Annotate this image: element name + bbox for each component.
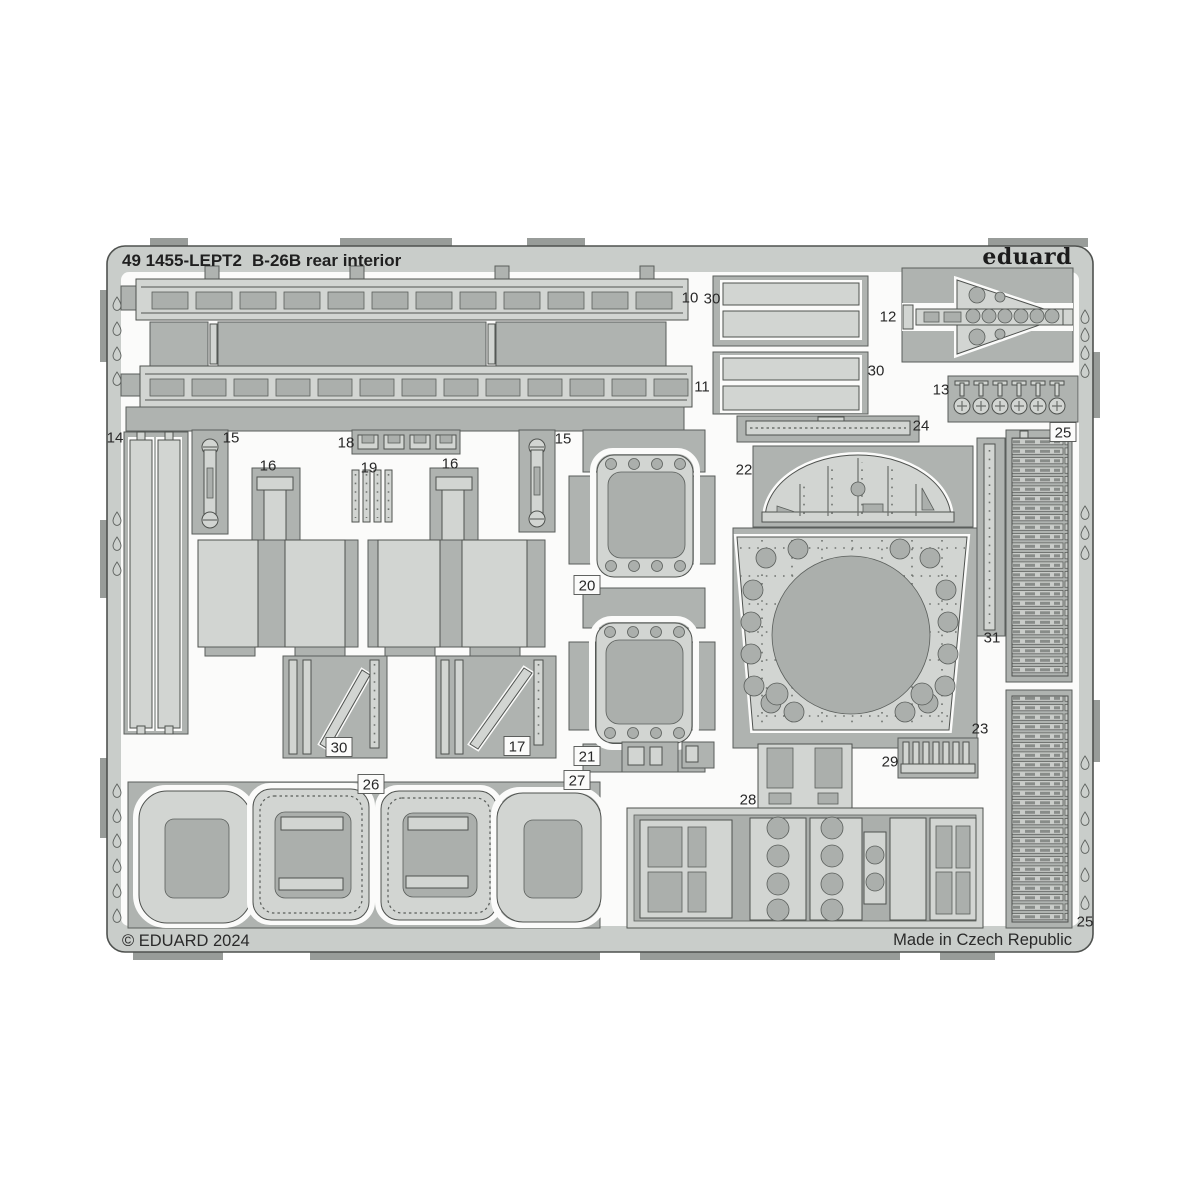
part-label-23: 23 [972, 721, 989, 738]
part-12-bracket [902, 268, 1073, 362]
part-label-30: 30 [331, 740, 348, 757]
part-label-20: 20 [579, 578, 596, 595]
part-label-12: 12 [880, 309, 897, 326]
part-30-springs-lower [713, 352, 868, 414]
brand-logo: eduard [982, 244, 1072, 270]
fret-sheet-graphic: 1030121130132425141516181916152220313017… [0, 0, 1200, 1200]
part-label-19: 19 [361, 460, 378, 477]
part-14-coils [124, 432, 188, 734]
part-29-comb [898, 738, 978, 778]
part-label-14: 14 [107, 430, 124, 447]
part-label-29: 29 [882, 754, 899, 771]
rail-web [150, 322, 666, 366]
part-11-catwalk [121, 366, 692, 431]
part-label-24: 24 [913, 418, 930, 435]
part-22-bulkhead [753, 446, 973, 527]
part-label-11: 11 [694, 379, 710, 396]
part-label-16: 16 [442, 456, 459, 473]
part-13-grommets [948, 376, 1078, 422]
part-label-31: 31 [984, 630, 1001, 647]
part-25-belt-lower [1006, 690, 1072, 928]
part-label-21: 21 [579, 749, 596, 766]
floor-panels [198, 540, 545, 656]
part-16-post-right [430, 468, 478, 540]
part-17-brace [436, 656, 556, 758]
part-15-turnbuckle-right [519, 430, 555, 532]
part-label-25: 25 [1055, 425, 1072, 442]
made-in-text: Made in Czech Republic [893, 931, 1072, 949]
sheet-title: B-26B rear interior [252, 251, 402, 270]
part-label-10: 10 [682, 290, 699, 307]
part-31-strip [977, 438, 1005, 636]
part-label-27: 27 [569, 773, 586, 790]
part-18-clips [352, 430, 460, 454]
part-label-26: 26 [363, 777, 380, 794]
photo-etch-fret-image: 1030121130132425141516181916152220313017… [0, 0, 1200, 1200]
part-label-15: 15 [223, 430, 240, 447]
part-label-18: 18 [338, 435, 355, 452]
part-label-22: 22 [736, 462, 753, 479]
sheet-code: 49 1455-LEPT2 [122, 251, 242, 270]
part-label-30: 30 [704, 291, 721, 308]
copyright-text: © EDUARD 2024 [122, 932, 250, 950]
part-20-window-frame [569, 430, 715, 581]
part-label-17: 17 [509, 739, 526, 756]
part-25-belt-upper [1006, 430, 1072, 682]
part-label-28: 28 [740, 792, 757, 809]
part-label-13: 13 [933, 382, 950, 399]
part-label-25: 25 [1077, 914, 1094, 931]
window-band-26-27 [128, 782, 604, 928]
part-label-30: 30 [868, 363, 885, 380]
part-16-post-left [252, 468, 300, 540]
part-label-15: 15 [555, 431, 572, 448]
part-label-16: 16 [260, 458, 277, 475]
part-30-springs-upper [713, 276, 868, 346]
part-23-turret-panel [733, 528, 977, 748]
part-24-strip [737, 416, 919, 442]
